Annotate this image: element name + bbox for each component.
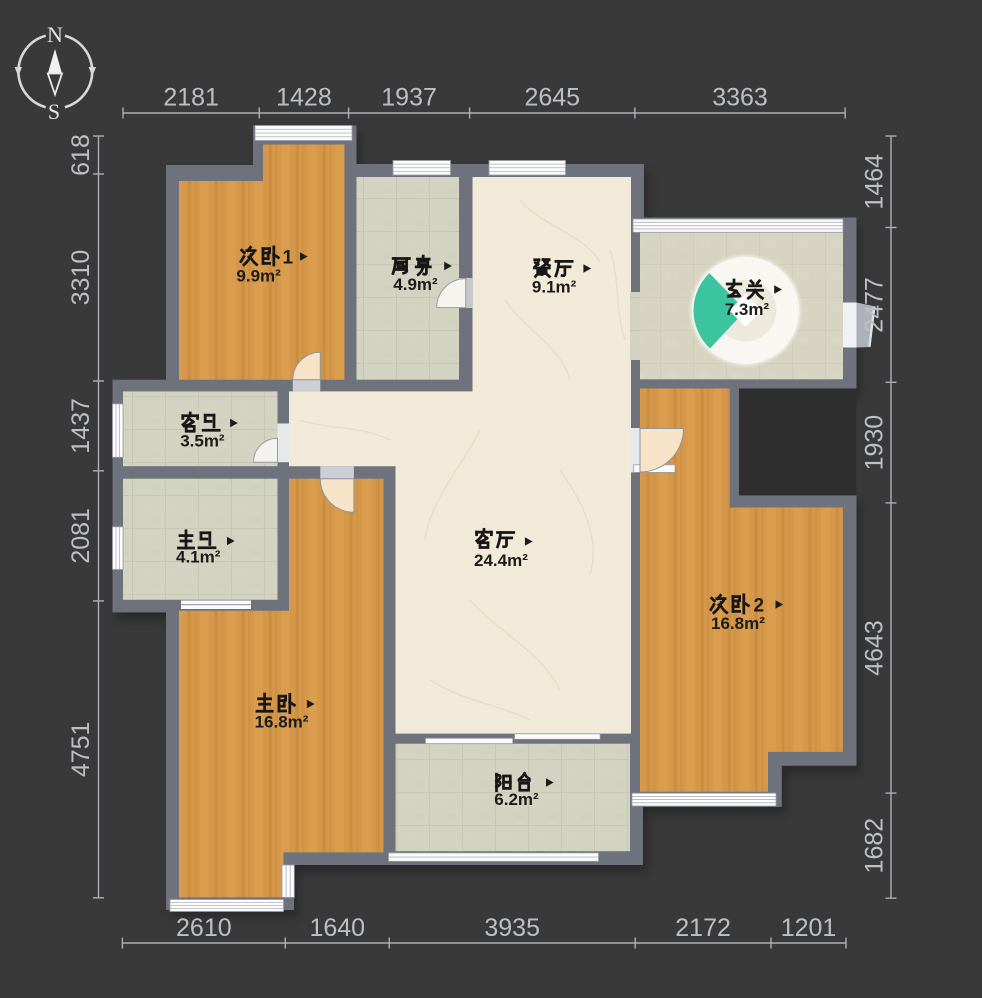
- svg-text:2181: 2181: [163, 84, 219, 112]
- svg-text:2645: 2645: [524, 84, 580, 112]
- svg-text:618: 618: [67, 134, 95, 176]
- svg-text:7.3m²: 7.3m²: [725, 300, 770, 319]
- svg-text:3363: 3363: [712, 84, 768, 112]
- svg-text:2477: 2477: [861, 277, 889, 333]
- svg-text:2610: 2610: [176, 914, 232, 942]
- svg-text:1640: 1640: [309, 914, 365, 942]
- svg-text:9.1m²: 9.1m²: [532, 278, 577, 297]
- svg-text:2081: 2081: [67, 508, 95, 564]
- svg-text:2172: 2172: [675, 914, 731, 942]
- svg-text:1437: 1437: [67, 398, 95, 454]
- svg-text:1428: 1428: [276, 84, 332, 112]
- svg-text:1937: 1937: [381, 84, 437, 112]
- svg-text:6.2m²: 6.2m²: [494, 790, 539, 809]
- svg-text:24.4m²: 24.4m²: [474, 551, 528, 570]
- svg-text:3310: 3310: [67, 250, 95, 306]
- svg-text:4.1m²: 4.1m²: [176, 547, 221, 566]
- svg-text:3935: 3935: [484, 914, 540, 942]
- svg-text:3.5m²: 3.5m²: [180, 432, 225, 451]
- svg-text:1930: 1930: [861, 415, 889, 471]
- svg-text:S: S: [48, 99, 60, 124]
- svg-text:4643: 4643: [861, 620, 889, 676]
- svg-text:1682: 1682: [861, 818, 889, 874]
- svg-text:4.9m²: 4.9m²: [393, 275, 438, 294]
- svg-text:16.8m²: 16.8m²: [255, 713, 309, 732]
- svg-text:1464: 1464: [861, 154, 889, 210]
- svg-text:9.9m²: 9.9m²: [236, 266, 281, 285]
- svg-text:N: N: [47, 22, 63, 47]
- svg-text:1: 1: [283, 248, 294, 269]
- svg-text:4751: 4751: [67, 722, 95, 778]
- svg-text:1201: 1201: [781, 914, 837, 942]
- svg-text:16.8m²: 16.8m²: [711, 614, 765, 633]
